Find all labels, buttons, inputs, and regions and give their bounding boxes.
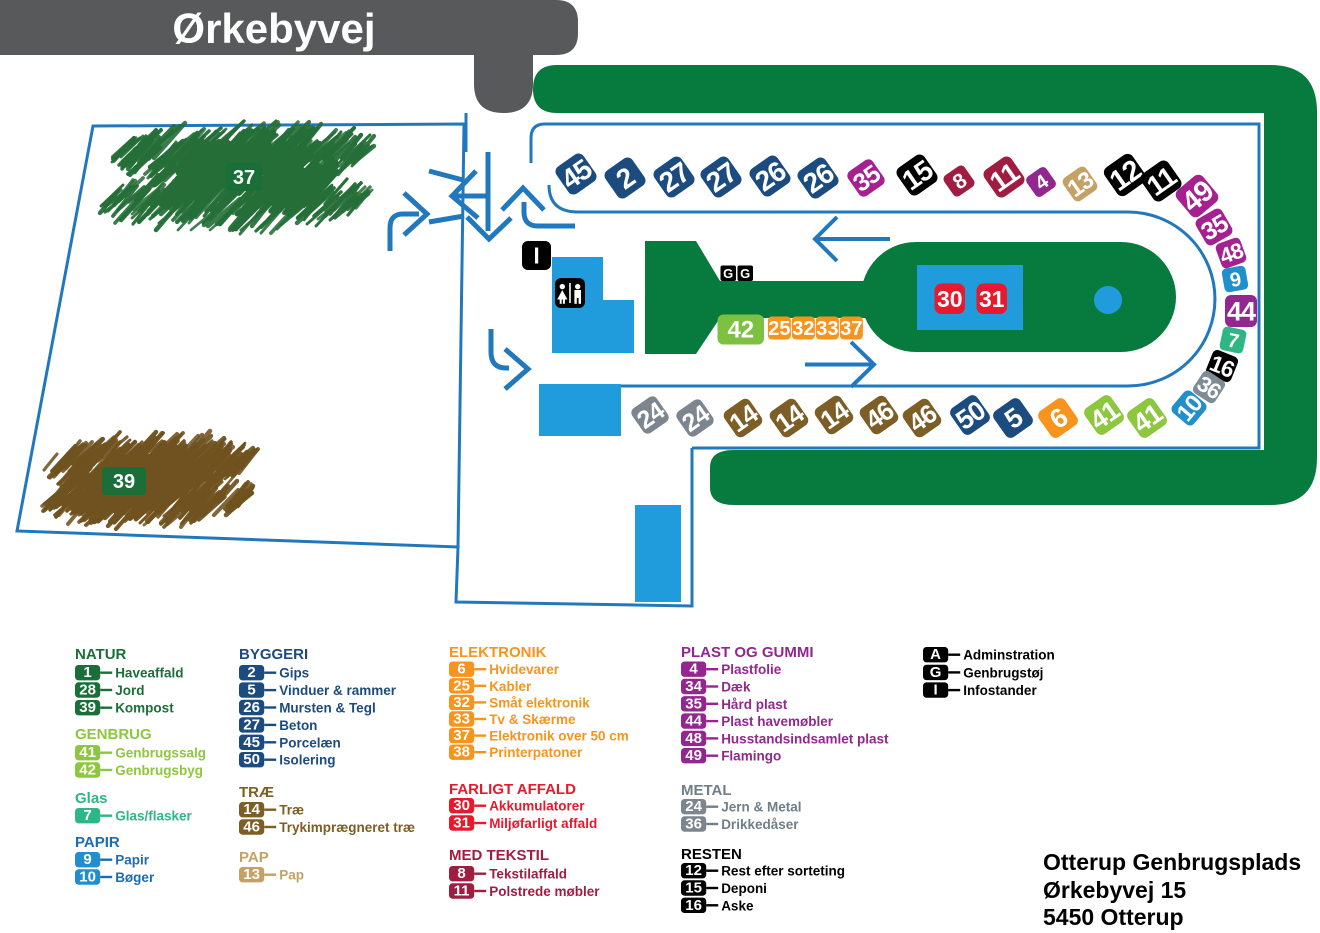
svg-text:Beton: Beton [279,718,317,733]
svg-text:Husstandsindsamlet plast: Husstandsindsamlet plast [721,731,889,746]
svg-text:48: 48 [1216,238,1246,269]
svg-text:Glas/flasker: Glas/flasker [115,809,192,824]
svg-text:30: 30 [937,286,963,312]
svg-text:PAPIR: PAPIR [75,834,120,851]
svg-text:RESTEN: RESTEN [681,846,742,863]
svg-text:Deponi: Deponi [721,881,767,896]
svg-text:28: 28 [79,682,96,699]
svg-text:Dæk: Dæk [721,680,751,695]
svg-text:1: 1 [83,664,91,681]
svg-text:Adminstration: Adminstration [963,648,1055,663]
svg-text:24: 24 [685,798,702,815]
svg-text:8: 8 [457,865,465,882]
svg-text:31: 31 [979,286,1005,312]
svg-text:36: 36 [685,816,702,833]
svg-text:14: 14 [724,397,765,438]
svg-text:26: 26 [749,155,791,197]
svg-text:16: 16 [685,897,702,914]
svg-text:37: 37 [233,167,255,189]
svg-text:Kompost: Kompost [115,701,174,716]
svg-text:14: 14 [815,394,856,435]
svg-text:MED TEKSTIL: MED TEKSTIL [449,847,549,864]
svg-text:G: G [723,266,733,281]
svg-text:Rest efter sorteting: Rest efter sorteting [721,864,845,879]
svg-text:25: 25 [768,318,790,340]
svg-text:Miljøfarligt affald: Miljøfarligt affald [489,816,597,831]
svg-text:G: G [930,664,942,681]
svg-text:Genbrugssalg: Genbrugssalg [115,746,206,761]
svg-text:34: 34 [685,678,702,695]
svg-text:27: 27 [243,716,260,733]
svg-text:ELEKTRONIK: ELEKTRONIK [449,644,547,661]
svg-text:14: 14 [243,801,260,818]
svg-text:9: 9 [83,851,91,868]
svg-text:Hvidevarer: Hvidevarer [489,662,560,677]
svg-text:Drikkedåser: Drikkedåser [721,817,799,832]
svg-text:11: 11 [1141,161,1182,202]
svg-text:15: 15 [896,154,938,196]
svg-text:Ørkebyvej 15: Ørkebyvej 15 [1043,877,1186,903]
svg-text:39: 39 [79,699,96,716]
svg-text:25: 25 [453,677,470,694]
svg-text:32: 32 [792,318,814,340]
svg-text:11: 11 [984,157,1025,198]
svg-text:Pap: Pap [279,868,304,883]
svg-text:Polstrede møbler: Polstrede møbler [489,884,600,899]
svg-text:41: 41 [79,744,96,761]
svg-text:50: 50 [950,395,990,436]
svg-text:33: 33 [453,711,470,728]
svg-text:42: 42 [79,762,96,779]
svg-text:NATUR: NATUR [75,646,127,663]
svg-text:Otterup Genbrugsplads: Otterup Genbrugsplads [1043,849,1301,875]
svg-text:35: 35 [848,159,886,197]
svg-text:30: 30 [453,797,470,814]
svg-text:Akkumulatorer: Akkumulatorer [489,799,585,814]
svg-text:15: 15 [685,880,702,897]
svg-text:PAP: PAP [239,849,269,866]
svg-text:Haveaffald: Haveaffald [115,666,183,681]
svg-text:13: 13 [243,866,260,883]
svg-text:Gips: Gips [279,666,309,681]
svg-text:Infostander: Infostander [963,683,1037,698]
svg-text:Isolering: Isolering [279,753,335,768]
svg-text:32: 32 [453,694,470,711]
svg-text:Jern & Metal: Jern & Metal [721,800,801,815]
svg-text:5: 5 [247,682,255,699]
svg-text:37: 37 [840,318,862,340]
svg-text:46: 46 [903,398,943,438]
svg-text:TRÆ: TRÆ [239,784,274,801]
svg-text:Kabler: Kabler [489,679,532,694]
svg-text:44: 44 [1227,297,1256,327]
svg-text:50: 50 [243,751,260,768]
svg-text:Genbrugsbyg: Genbrugsbyg [115,763,203,778]
svg-text:26: 26 [243,699,260,716]
svg-text:BYGGERI: BYGGERI [239,646,308,663]
svg-text:Småt elektronik: Småt elektronik [489,695,590,710]
svg-text:Plastfolie: Plastfolie [721,662,782,677]
svg-text:14: 14 [770,397,811,438]
svg-text:46: 46 [243,819,260,836]
svg-text:PLAST OG GUMMI: PLAST OG GUMMI [681,644,814,661]
svg-text:Jord: Jord [115,683,144,698]
svg-text:37: 37 [453,727,470,744]
svg-text:13: 13 [1063,166,1099,203]
svg-text:38: 38 [453,744,470,761]
svg-text:Flamingo: Flamingo [721,749,781,764]
svg-text:12: 12 [685,862,702,879]
svg-text:Genbrugstøj: Genbrugstøj [963,665,1043,680]
svg-text:METAL: METAL [681,782,732,799]
svg-text:Tv & Skærme: Tv & Skærme [489,712,576,727]
svg-text:24: 24 [632,396,670,434]
svg-text:Glas: Glas [75,790,108,807]
svg-text:11: 11 [454,883,470,900]
svg-text:I: I [934,682,938,699]
svg-text:33: 33 [816,318,838,340]
svg-text:24: 24 [677,399,715,437]
svg-text:5450 Otterup: 5450 Otterup [1043,904,1184,930]
svg-text:49: 49 [685,747,702,764]
svg-text:42: 42 [727,317,754,344]
svg-text:48: 48 [685,730,702,747]
svg-text:4: 4 [689,661,698,678]
svg-text:Mursten & Tegl: Mursten & Tegl [279,701,376,716]
svg-text:26: 26 [797,157,839,199]
svg-text:39: 39 [113,471,135,493]
svg-text:Hård plast: Hård plast [721,697,788,712]
svg-text:Træ: Træ [279,803,304,818]
svg-text:45: 45 [243,734,260,751]
svg-text:6: 6 [457,661,465,678]
svg-text:35: 35 [685,695,702,712]
svg-text:Papir: Papir [115,853,150,868]
svg-text:46: 46 [860,395,900,435]
svg-text:Bøger: Bøger [115,870,155,885]
svg-text:Plast havemøbler: Plast havemøbler [721,714,834,729]
svg-text:Trykimprægneret træ: Trykimprægneret træ [279,820,415,835]
svg-text:Ørkebyvej: Ørkebyvej [172,5,375,52]
svg-text:27: 27 [700,156,742,198]
svg-text:41: 41 [1084,395,1125,436]
svg-text:31: 31 [453,815,470,832]
svg-text:Printerpatoner: Printerpatoner [489,745,583,760]
svg-text:41: 41 [1127,398,1168,439]
svg-text:Porcelæn: Porcelæn [279,735,341,750]
svg-text:Vinduer & rammer: Vinduer & rammer [279,683,397,698]
svg-text:44: 44 [685,713,702,730]
svg-text:G: G [740,266,750,281]
svg-text:FARLIGT AFFALD: FARLIGT AFFALD [449,781,576,798]
svg-text:A: A [930,646,941,663]
svg-text:GENBRUG: GENBRUG [75,726,152,743]
svg-text:7: 7 [83,807,91,824]
svg-text:Elektronik over 50 cm: Elektronik over 50 cm [489,729,629,744]
svg-text:Tekstilaffald: Tekstilaffald [489,867,567,882]
svg-text:Aske: Aske [721,898,754,913]
svg-text:10: 10 [79,869,96,886]
svg-text:45: 45 [555,153,597,195]
svg-text:2: 2 [247,664,255,681]
svg-text:27: 27 [653,156,695,198]
